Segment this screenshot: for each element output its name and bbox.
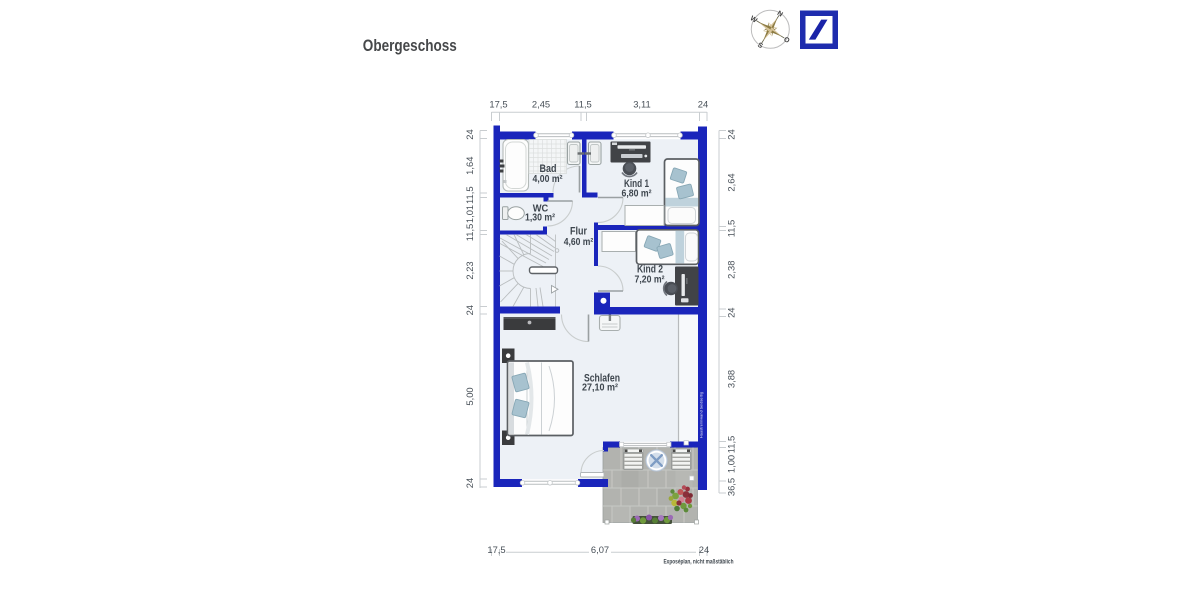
svg-text:6,07: 6,07	[591, 544, 609, 555]
svg-text:6,80 m²: 6,80 m²	[622, 189, 653, 200]
svg-text:11,5: 11,5	[726, 220, 737, 238]
svg-text:2,64: 2,64	[726, 173, 737, 191]
svg-text:11,5: 11,5	[726, 436, 737, 454]
svg-text:17,5: 17,5	[489, 99, 507, 110]
svg-text:11,5: 11,5	[464, 186, 475, 204]
svg-text:1,30 m²: 1,30 m²	[525, 213, 556, 224]
svg-text:36,5: 36,5	[726, 478, 737, 496]
svg-text:3,88: 3,88	[726, 370, 737, 388]
svg-text:4,00 m²: 4,00 m²	[533, 174, 564, 185]
svg-text:2,45: 2,45	[532, 99, 550, 110]
svg-text:24: 24	[699, 544, 709, 555]
svg-text:1,01: 1,01	[464, 205, 475, 223]
svg-text:24: 24	[698, 99, 708, 110]
svg-text:11,5: 11,5	[464, 224, 475, 242]
svg-text:17,5: 17,5	[487, 544, 505, 555]
svg-text:7,20 m²: 7,20 m²	[635, 275, 666, 286]
svg-text:11,5: 11,5	[574, 99, 592, 110]
svg-text:1,64: 1,64	[464, 157, 475, 175]
svg-text:3,11: 3,11	[633, 99, 651, 110]
svg-text:Haustrennwand beidseitig: Haustrennwand beidseitig	[700, 392, 704, 438]
svg-text:27,10 m²: 27,10 m²	[582, 383, 619, 394]
svg-text:Exposéplan, nicht maßstäblich: Exposéplan, nicht maßstäblich	[664, 559, 734, 566]
svg-text:5,00: 5,00	[464, 387, 475, 405]
svg-text:Flur: Flur	[570, 226, 588, 238]
svg-text:1,00: 1,00	[726, 455, 737, 473]
svg-text:Obergeschoss: Obergeschoss	[363, 36, 457, 55]
svg-text:2,23: 2,23	[464, 261, 475, 279]
svg-text:24: 24	[464, 478, 475, 488]
svg-text:4,60 m²: 4,60 m²	[564, 237, 594, 248]
svg-text:24: 24	[464, 129, 475, 139]
svg-text:24: 24	[726, 129, 737, 139]
svg-text:2,38: 2,38	[726, 261, 737, 279]
svg-text:24: 24	[464, 305, 475, 315]
svg-text:24: 24	[726, 307, 737, 317]
